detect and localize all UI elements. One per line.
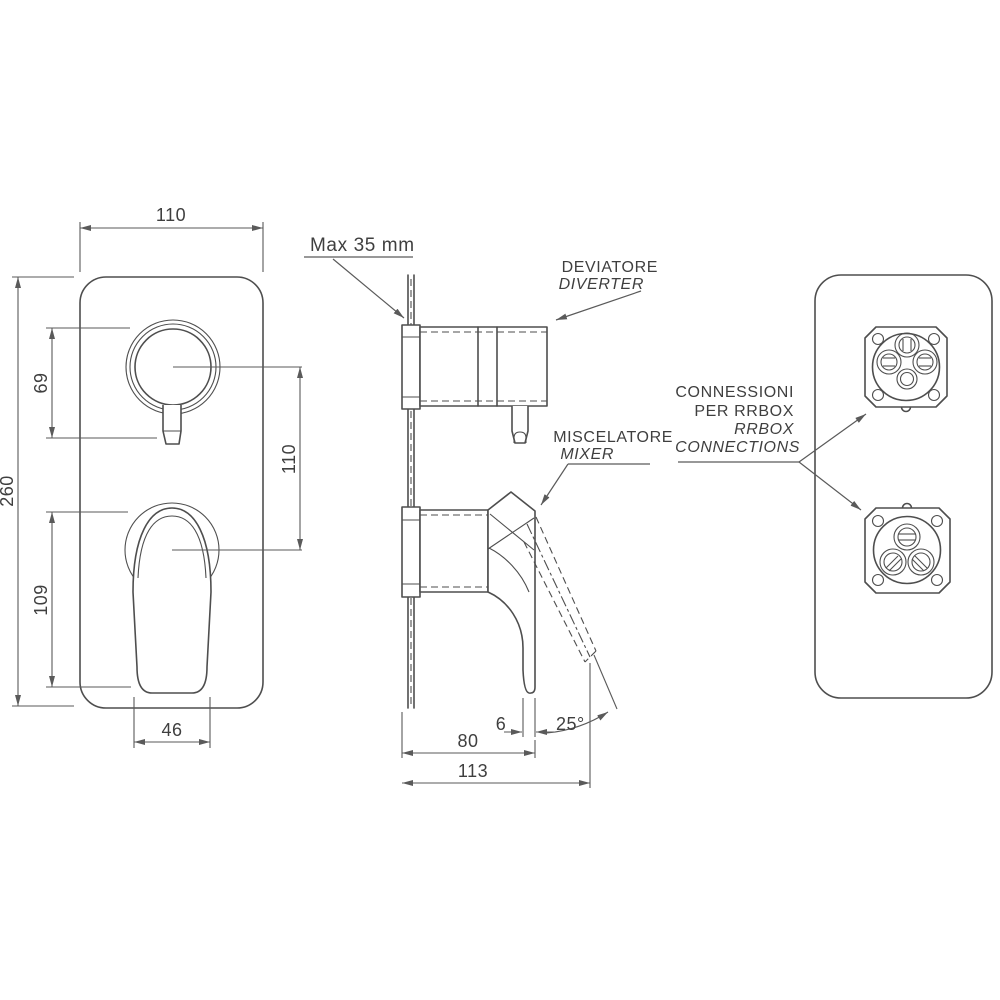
diverter-tab xyxy=(163,405,181,444)
mixer-side xyxy=(402,492,617,709)
mixer-handle-front xyxy=(125,503,302,693)
diverter-body xyxy=(420,327,547,406)
dim-total-depth-text: 113 xyxy=(458,761,488,781)
max-depth-text: Max 35 mm xyxy=(310,235,415,256)
dim-plate-width: 110 xyxy=(80,205,263,272)
diverter-side xyxy=(402,325,547,443)
connections-line1: CONNESSIONI xyxy=(675,384,794,401)
dim-plate-height-text: 260 xyxy=(0,475,17,507)
dim-handle-height: 109 xyxy=(31,512,131,687)
dim-center-distance-text: 110 xyxy=(279,444,299,474)
shower-mixer-technical-drawing: 110 260 69 109 46 xyxy=(0,0,1000,1000)
dim-plate-width-text: 110 xyxy=(156,205,186,225)
back-view: CONNESSIONI PER RRBOX RRBOX CONNECTIONS xyxy=(675,275,992,698)
mixer-label-it: MISCELATORE xyxy=(553,429,673,446)
connections-line3: RRBOX xyxy=(734,421,795,438)
diverter-callout: DEVIATORE DIVERTER xyxy=(556,259,658,320)
dim-body-depth-text: 80 xyxy=(457,731,478,751)
dim-handle-width: 46 xyxy=(134,697,210,748)
dim-lever-angle-text: 25° xyxy=(556,714,585,734)
dim-plate-height: 260 xyxy=(0,277,74,706)
port-bottom-right xyxy=(908,549,934,575)
mixer-label-en: MIXER xyxy=(560,446,614,463)
connection-box-top xyxy=(865,327,947,412)
dim-lever-thickness-text: 6 xyxy=(496,714,507,734)
side-view: Max 35 mm DEVIATORE DIVERTER xyxy=(304,235,673,788)
diverter-label-it: DEVIATORE xyxy=(562,259,658,276)
diverter-knob-front xyxy=(126,320,302,444)
connections-line4: CONNECTIONS xyxy=(675,439,800,456)
top-box-plate xyxy=(865,327,947,407)
technical-drawing-page: 110 260 69 109 46 xyxy=(0,0,1000,1000)
connections-line2: PER RRBOX xyxy=(694,403,794,420)
mixer-body xyxy=(420,510,488,592)
mixer-callout: MISCELATORE MIXER xyxy=(541,429,673,505)
connection-box-bottom xyxy=(865,504,950,594)
max-depth-callout: Max 35 mm xyxy=(304,235,415,318)
connections-callout: CONNESSIONI PER RRBOX RRBOX CONNECTIONS xyxy=(675,384,866,510)
dim-center-distance: 110 xyxy=(279,367,300,550)
dim-lever-thickness: 6 xyxy=(496,698,554,737)
dim-body-depth: 80 xyxy=(402,712,535,758)
diverter-label-en: DIVERTER xyxy=(559,276,644,293)
mixer-handle-outline xyxy=(133,508,211,693)
front-view: 110 260 69 109 46 xyxy=(0,205,302,748)
dim-lever-angle: 25° xyxy=(547,712,608,734)
dim-handle-height-text: 109 xyxy=(31,584,51,616)
dim-handle-width-text: 46 xyxy=(161,720,182,740)
dim-diverter-height-text: 69 xyxy=(31,372,51,393)
diverter-flange xyxy=(402,325,420,409)
